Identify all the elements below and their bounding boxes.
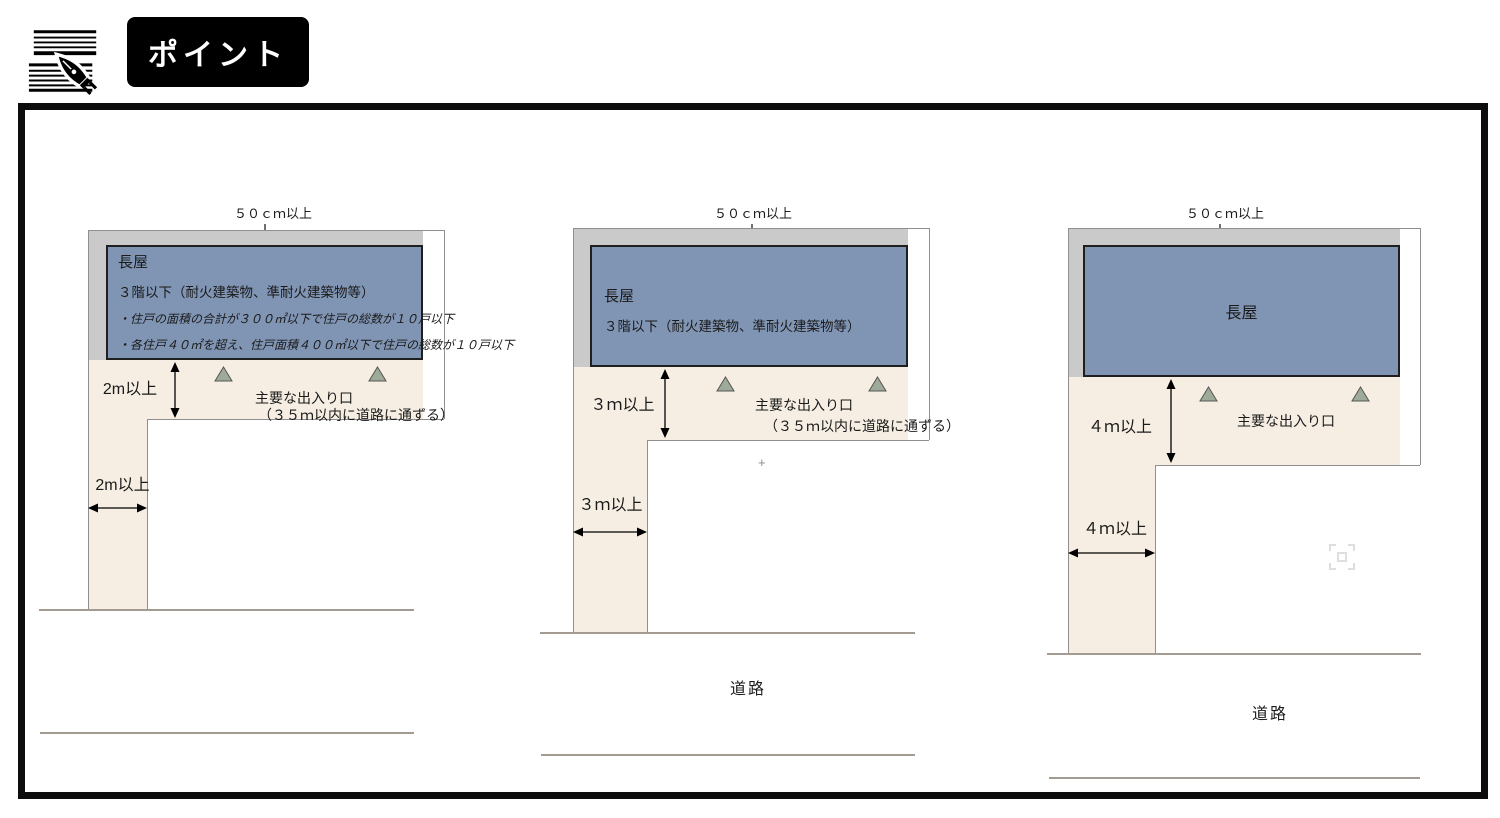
slide-canvas: ポイント ５０ｃｍ以上 長屋 ３階以下（耐火建築物、準耐火建築物等） ・住戸の面… bbox=[0, 0, 1500, 818]
road-label: 道路 bbox=[1220, 700, 1320, 724]
pen-writing-on-lines-icon bbox=[26, 20, 104, 100]
passage-width-label: 2m以上 bbox=[80, 471, 165, 495]
building-name: 長屋 bbox=[604, 285, 894, 306]
diagram-panel-2: ５０ｃｍ以上 長屋 ３階以下（耐火建築物、準耐火建築物等） ３ｍ以上 主要な出入… bbox=[540, 195, 980, 775]
boundary-line-bottom bbox=[647, 440, 929, 441]
building-box: 長屋 ３階以下（耐火建築物、準耐火建築物等） ・住戸の面積の合計が３００㎡以下で… bbox=[106, 245, 423, 360]
building-note-2: ・各住戸４０㎡を超え、住戸面積４００㎡以下で住戸の総数が１０戸以下 bbox=[118, 336, 411, 353]
road-line bbox=[40, 732, 414, 734]
boundary-line-left bbox=[1068, 228, 1069, 653]
boundary-line-right bbox=[1420, 228, 1421, 465]
entrance-label: 主要な出入り口 bbox=[755, 395, 853, 415]
diagram-panel-1: ５０ｃｍ以上 長屋 ３階以下（耐火建築物、準耐火建築物等） ・住戸の面積の合計が… bbox=[30, 195, 500, 755]
building-spec: ３階以下（耐火建築物、準耐火建築物等） bbox=[118, 281, 411, 301]
passage-width-arrow-icon bbox=[1068, 547, 1155, 559]
entrance-triangle-icon bbox=[868, 376, 887, 392]
boundary-line-top bbox=[1068, 228, 1420, 229]
entrance-note: （３５ｍ以内に道路に通ずる） bbox=[258, 405, 454, 425]
page-title: ポイント bbox=[148, 30, 288, 74]
boundary-line-right bbox=[929, 228, 930, 440]
clearance-label: ５０ｃｍ以上 bbox=[223, 203, 323, 222]
building-box: 長屋 bbox=[1083, 245, 1400, 377]
passage-width-label: ４ｍ以上 bbox=[1070, 515, 1160, 539]
passage-width-label: ３ｍ以上 bbox=[568, 491, 653, 515]
building-note-1: ・住戸の面積の合計が３００㎡以下で住戸の総数が１０戸以下 bbox=[118, 310, 411, 327]
plus-marker: + bbox=[758, 455, 766, 470]
entrance-note: （３５ｍ以内に道路に通ずる） bbox=[764, 416, 960, 436]
focus-marker-icon bbox=[1328, 543, 1356, 571]
boundary-line-bottom bbox=[1155, 465, 1420, 466]
entrance-triangle-icon bbox=[368, 366, 387, 382]
setback-label: ３ｍ以上 bbox=[580, 391, 665, 415]
passage-edge-line bbox=[647, 440, 648, 632]
entrance-triangle-icon bbox=[1199, 386, 1218, 402]
clearance-label: ５０ｃｍ以上 bbox=[1175, 203, 1275, 222]
boundary-line-top bbox=[88, 230, 444, 231]
entrance-triangle-icon bbox=[1351, 386, 1370, 402]
road-line bbox=[39, 609, 414, 611]
passage-width-arrow-icon bbox=[88, 502, 147, 514]
boundary-line-top bbox=[573, 228, 929, 229]
road-label: 道路 bbox=[698, 675, 798, 699]
entrance-triangle-icon bbox=[214, 366, 233, 382]
building-spec: ３階以下（耐火建築物、準耐火建築物等） bbox=[604, 315, 894, 335]
boundary-line-left bbox=[88, 230, 89, 609]
setback-label: 2m以上 bbox=[90, 375, 170, 399]
road-line bbox=[541, 754, 915, 756]
road-line bbox=[1049, 777, 1420, 779]
passage-edge-line bbox=[1155, 465, 1156, 653]
entrance-label: 主要な出入り口 bbox=[1237, 411, 1335, 431]
boundary-line-left bbox=[573, 228, 574, 632]
building-box: 長屋 ３階以下（耐火建築物、準耐火建築物等） bbox=[590, 245, 908, 367]
road-line bbox=[1047, 653, 1421, 655]
setback-arrow-icon bbox=[1165, 379, 1177, 463]
building-name: 長屋 bbox=[118, 251, 411, 272]
page-title-box: ポイント bbox=[127, 17, 309, 87]
passage-edge-line bbox=[147, 419, 148, 609]
building-name: 長屋 bbox=[1225, 299, 1257, 323]
entrance-triangle-icon bbox=[716, 376, 735, 392]
clearance-label: ５０ｃｍ以上 bbox=[703, 203, 803, 222]
passage-width-arrow-icon bbox=[573, 526, 647, 538]
road-line bbox=[540, 632, 915, 634]
setback-arrow-icon bbox=[169, 362, 181, 418]
diagram-panel-3: ５０ｃｍ以上 長屋 ４ｍ以上 主要な出入り口 ４ｍ以上 bbox=[1040, 195, 1490, 795]
setback-label: ４ｍ以上 bbox=[1075, 413, 1165, 437]
